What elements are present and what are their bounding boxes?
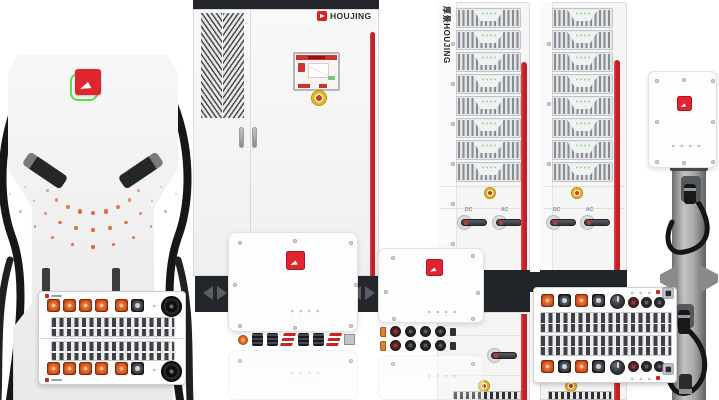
signal-connector [592,294,605,307]
display-red-bar [298,84,310,88]
decor-dot [34,225,37,228]
signal-connector [558,360,571,373]
signal-connector [131,362,144,375]
display-red-bar [319,84,327,88]
status-led-grid [287,305,319,315]
ac-rotary-switch [580,215,614,231]
vent-slats [540,312,672,333]
charging-connector [678,310,690,334]
wallbox-charger-b [378,245,484,400]
orange-terminal-tab [380,341,386,351]
hmi-display [293,52,340,91]
red-terminal-block [280,333,296,346]
screw [655,160,659,164]
wall-mounted-charger [648,71,717,168]
decor-dot [91,211,95,215]
decor-dot [132,236,135,239]
status-led-grid [627,373,655,383]
screw [682,161,686,165]
wallbox-brand-logo [286,251,305,270]
door-handle [252,127,257,148]
power-module-slot [552,52,613,72]
screw [547,162,551,166]
dc-output-connector [63,299,76,312]
module-led-row [481,78,497,81]
module-brand-mark [656,376,660,380]
decor-dot [139,212,142,215]
decor-dot [150,225,153,228]
wallbox-reflection [228,350,358,400]
switch-dot [587,221,591,225]
rack-power-module-wide [533,287,677,383]
screw [349,324,353,328]
status-led-grid [424,306,456,316]
power-module-slot [456,74,521,94]
module-led-row [481,122,497,125]
decor-dot [19,210,21,212]
lower-rotary-switch [487,348,521,364]
dc-output-connector [115,299,128,312]
switch-dot [553,221,557,225]
decor-dot [46,189,49,192]
cable-plug-tip [679,374,692,394]
module-led-row [575,100,591,103]
decor-dot [51,236,54,239]
cooling-fan [161,361,182,382]
dc-switch-label: DC [465,207,472,213]
screw [238,324,242,328]
ac-switch-label: AC [501,207,508,213]
screw [238,359,242,363]
dc-output-connector [575,360,588,373]
vent-slats [51,341,175,361]
screw [547,102,551,106]
screw [349,241,353,245]
screw [451,122,455,126]
module-brand-mark [656,290,660,294]
black-gland [298,333,309,346]
gland-connector [390,326,401,337]
screw [354,283,358,287]
power-module-stack [552,8,613,184]
gland-nub [450,328,456,336]
module-led-row [481,100,497,103]
red-accent-stripe [370,32,375,276]
decor-dot [24,186,26,188]
black-gland [252,333,263,346]
display-chart-area [308,63,329,78]
decor-dot [112,243,115,246]
black-gland [313,333,324,346]
dc-output-connector [47,299,60,312]
display-header-bar [296,55,337,60]
module-led-row [481,56,497,59]
rotary-knob [610,294,625,309]
brand-logo: HOUJING [317,11,372,21]
tower-vertical-brand-text: 厚景HOUJING [441,6,452,64]
dc-output-connector [79,362,92,375]
power-module-slot [456,52,521,72]
dc-output-connector [115,362,128,375]
dc-output-connector [95,299,108,312]
decor-dot [104,209,108,213]
screw [471,317,475,321]
round-connector [641,361,652,372]
decor-dot [33,200,35,202]
status-led-grid [287,367,319,377]
black-gland [267,333,278,346]
tower-emergency-stop [484,187,496,199]
wallbox-reflection [378,355,484,400]
dc-switch-label: DC [553,207,560,213]
module-led-row [575,122,591,125]
power-module-slot [456,140,521,160]
module-led-row [575,144,591,147]
decor-dot [151,200,153,202]
gland-connector [420,326,431,337]
gland-connector [405,326,416,337]
screw [547,42,551,46]
screw [391,256,395,260]
brand-red-square [656,290,660,294]
decor-dot [74,226,78,230]
red-accent-stripe [614,60,620,270]
screw [471,362,475,366]
status-led-grid [627,287,655,297]
decor-dot [44,212,47,215]
red-terminal-block [326,333,342,346]
screw [384,290,388,294]
base-foot [217,286,227,300]
screw [349,359,353,363]
ac-switch-label: AC [586,207,593,213]
ventilation-grille-left [201,13,222,118]
decor-dot [137,189,140,192]
screw [392,317,396,321]
screw [655,120,659,124]
module-led-row [575,78,591,81]
dc-output-connector [63,362,76,375]
connector-band [678,315,690,318]
power-module-slot [552,162,613,182]
power-module-slot [552,140,613,160]
power-module-slot [456,30,521,50]
panel-divider [440,208,527,209]
power-module-slot [552,74,613,94]
screw [655,79,659,83]
screw [293,326,297,330]
wallbox-brand-logo [426,259,443,276]
round-connector [628,361,639,372]
round-connector [641,297,652,308]
plug-tip-band [679,389,692,394]
decor-dot [78,209,82,213]
status-led-grid [424,370,456,380]
decor-dot [175,193,177,195]
base-foot [203,286,213,300]
brand-red-square [45,294,49,298]
round-connector [628,297,639,308]
orange-gland [238,335,248,345]
decor-dot [160,186,162,188]
panel-divider [543,186,624,187]
metal-gland [344,334,355,345]
decor-dot [108,226,112,230]
decor-dot [9,193,11,195]
decor-dot [66,205,70,209]
screw [682,78,686,82]
screw [451,82,455,86]
dc-output-connector [95,362,108,375]
cable-upper-loop [668,196,707,252]
ventilation-grille-right [223,13,244,118]
dc-output-connector [541,360,554,373]
gland-connector [435,340,446,351]
module-led-row [575,166,591,169]
product-collage-scene: HOUJING 厚景HOUJING DC AC [0,0,719,400]
door-handle [239,127,244,148]
charging-connector [684,184,696,204]
emergency-stop-button [311,90,327,106]
display-logo-block [298,63,305,72]
signal-connector [558,294,571,307]
module-led-row [481,12,497,15]
dc-output-connector [575,294,588,307]
display-green-button [328,76,335,80]
module-led-row [481,144,497,147]
decor-dot [116,205,120,209]
power-module-slot [456,96,521,116]
dc-rotary-switch [546,215,580,231]
power-module-slot [552,8,613,28]
status-led-grid [668,140,700,150]
power-module-slot [552,30,613,50]
round-connector [654,297,665,308]
module-led-row [481,166,497,169]
gland-connector [390,340,401,351]
vent-slats [540,335,672,356]
vent-slats [51,317,175,337]
module-brand-mark [45,378,62,382]
rotary-knob [610,360,625,375]
power-module-stack [456,8,521,184]
rack-power-modules [38,291,186,385]
terminal-gland-row [380,326,456,337]
power-module-slot [456,118,521,138]
screw [238,241,242,245]
dc-output-connector [47,362,60,375]
switch-dot [494,354,498,358]
wallbox-body [228,232,358,332]
switch-dot [499,221,503,225]
screw [711,120,715,124]
module-led-row [575,34,591,37]
tower-emergency-stop [571,187,583,199]
signal-connector [592,360,605,373]
dc-rotary-switch [457,215,491,231]
red-accent-stripe [521,62,527,270]
terminal-gland-row [380,340,456,351]
power-module-slot [456,8,521,28]
bottom-vent-strip [548,391,612,400]
screw [451,162,455,166]
decor-dot [164,210,166,212]
orange-terminal-tab [380,327,386,337]
switch-dot [464,221,468,225]
module-led-row [481,34,497,37]
decor-dot [58,221,61,224]
screw [711,160,715,164]
brand-red-square [656,376,660,380]
screw [476,291,480,295]
screw [233,283,237,287]
brand-text-bar [51,379,62,382]
module-divider [39,338,185,339]
decor-dot [71,243,74,246]
signal-connector [131,299,144,312]
module-brand-mark [45,294,62,298]
panel-divider [440,186,527,187]
brand-text-bar [51,295,62,298]
screw [391,362,395,366]
dc-output-connector [79,299,92,312]
decor-dot [128,198,131,201]
metal-connector [662,287,673,298]
gland-nub [450,342,456,350]
decor-dot [91,228,95,232]
terminal-gland-row [238,333,355,346]
decor-dot [145,179,147,181]
decor-dot [55,198,58,201]
screw [293,239,297,243]
red-accent-stripe [521,314,527,400]
power-module-slot [456,162,521,182]
gland-connector [435,326,446,337]
module-led-row [575,12,591,15]
screw [711,79,715,83]
decor-dot [124,221,127,224]
brand-logo-icon [317,11,327,21]
decor-dot [40,179,42,181]
charger-brand-logo [677,96,692,111]
brand-red-square [45,378,49,382]
power-module-slot [552,118,613,138]
cooling-fan [161,296,182,317]
decor-dot [91,245,94,248]
metal-connector [662,363,673,374]
wallbox-charger-a [228,232,358,400]
gland-connector [405,340,416,351]
module-led-row [575,56,591,59]
screw [471,254,475,258]
dc-output-connector [541,294,554,307]
base-foot [365,286,375,300]
brand-logo-text: HOUJING [330,11,372,21]
wallbox-body [378,248,484,323]
power-module-slot [552,96,613,116]
screw [451,202,455,206]
connector-band [684,188,696,191]
gland-connector [420,340,431,351]
